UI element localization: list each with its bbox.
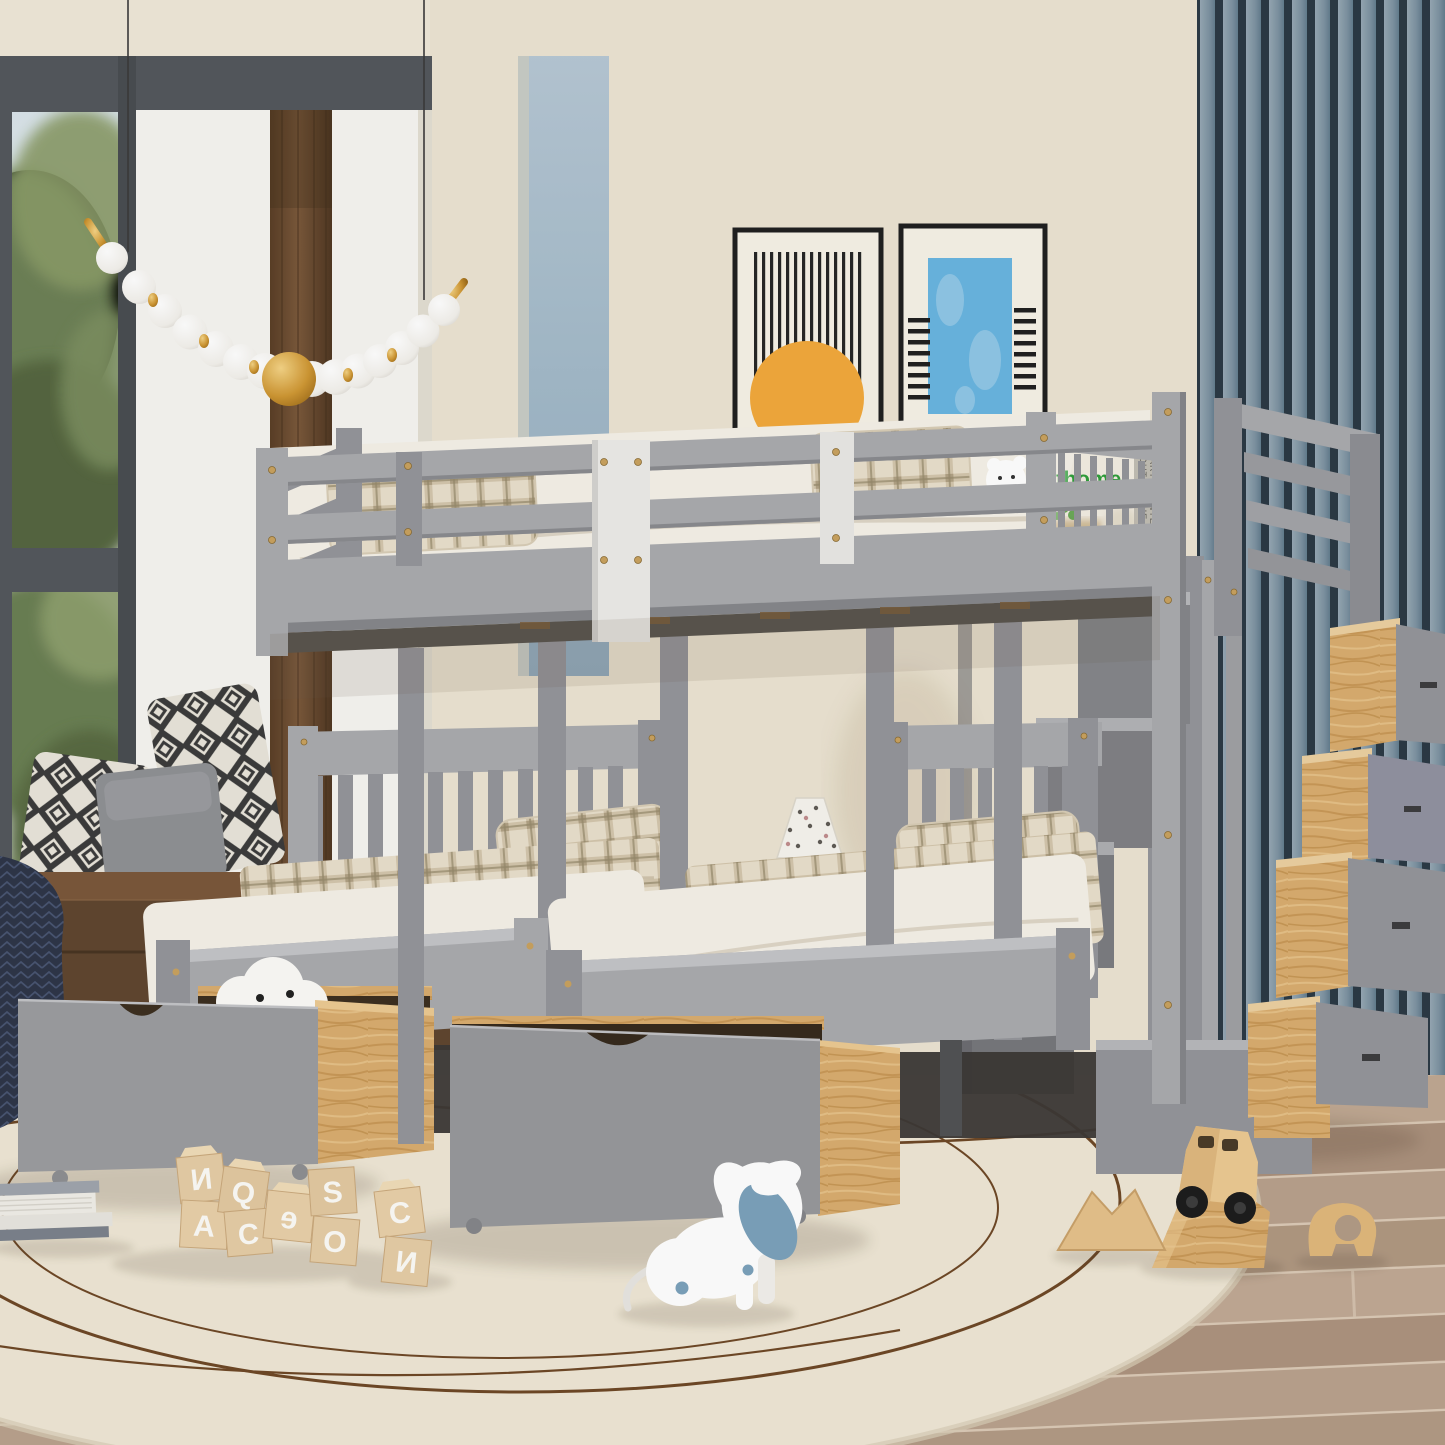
bedroom-photo: Kids bedroom product photo: gray wooden … bbox=[0, 0, 1445, 1445]
